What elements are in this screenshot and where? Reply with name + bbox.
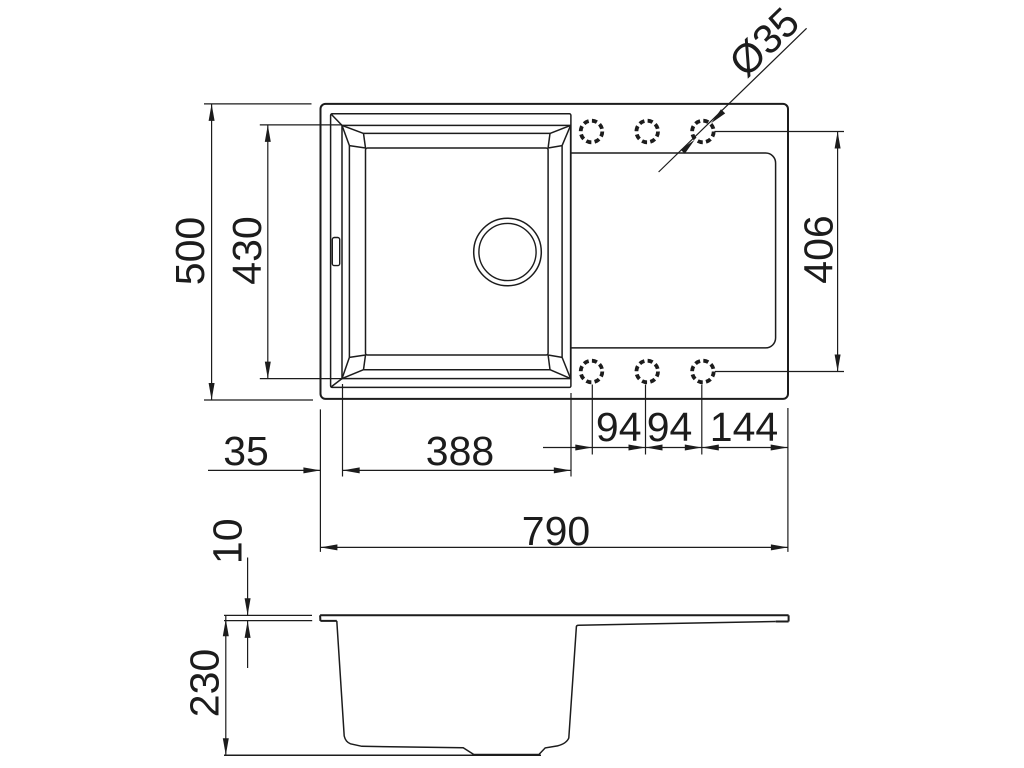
svg-text:10: 10: [205, 518, 251, 564]
svg-text:500: 500: [167, 217, 213, 285]
svg-text:35: 35: [223, 428, 269, 474]
svg-text:430: 430: [224, 216, 270, 284]
svg-text:94: 94: [596, 404, 642, 450]
svg-text:406: 406: [796, 215, 842, 283]
svg-text:144: 144: [710, 404, 778, 450]
svg-text:230: 230: [182, 649, 228, 717]
svg-text:790: 790: [522, 508, 590, 554]
svg-text:94: 94: [647, 404, 693, 450]
svg-text:388: 388: [426, 428, 494, 474]
